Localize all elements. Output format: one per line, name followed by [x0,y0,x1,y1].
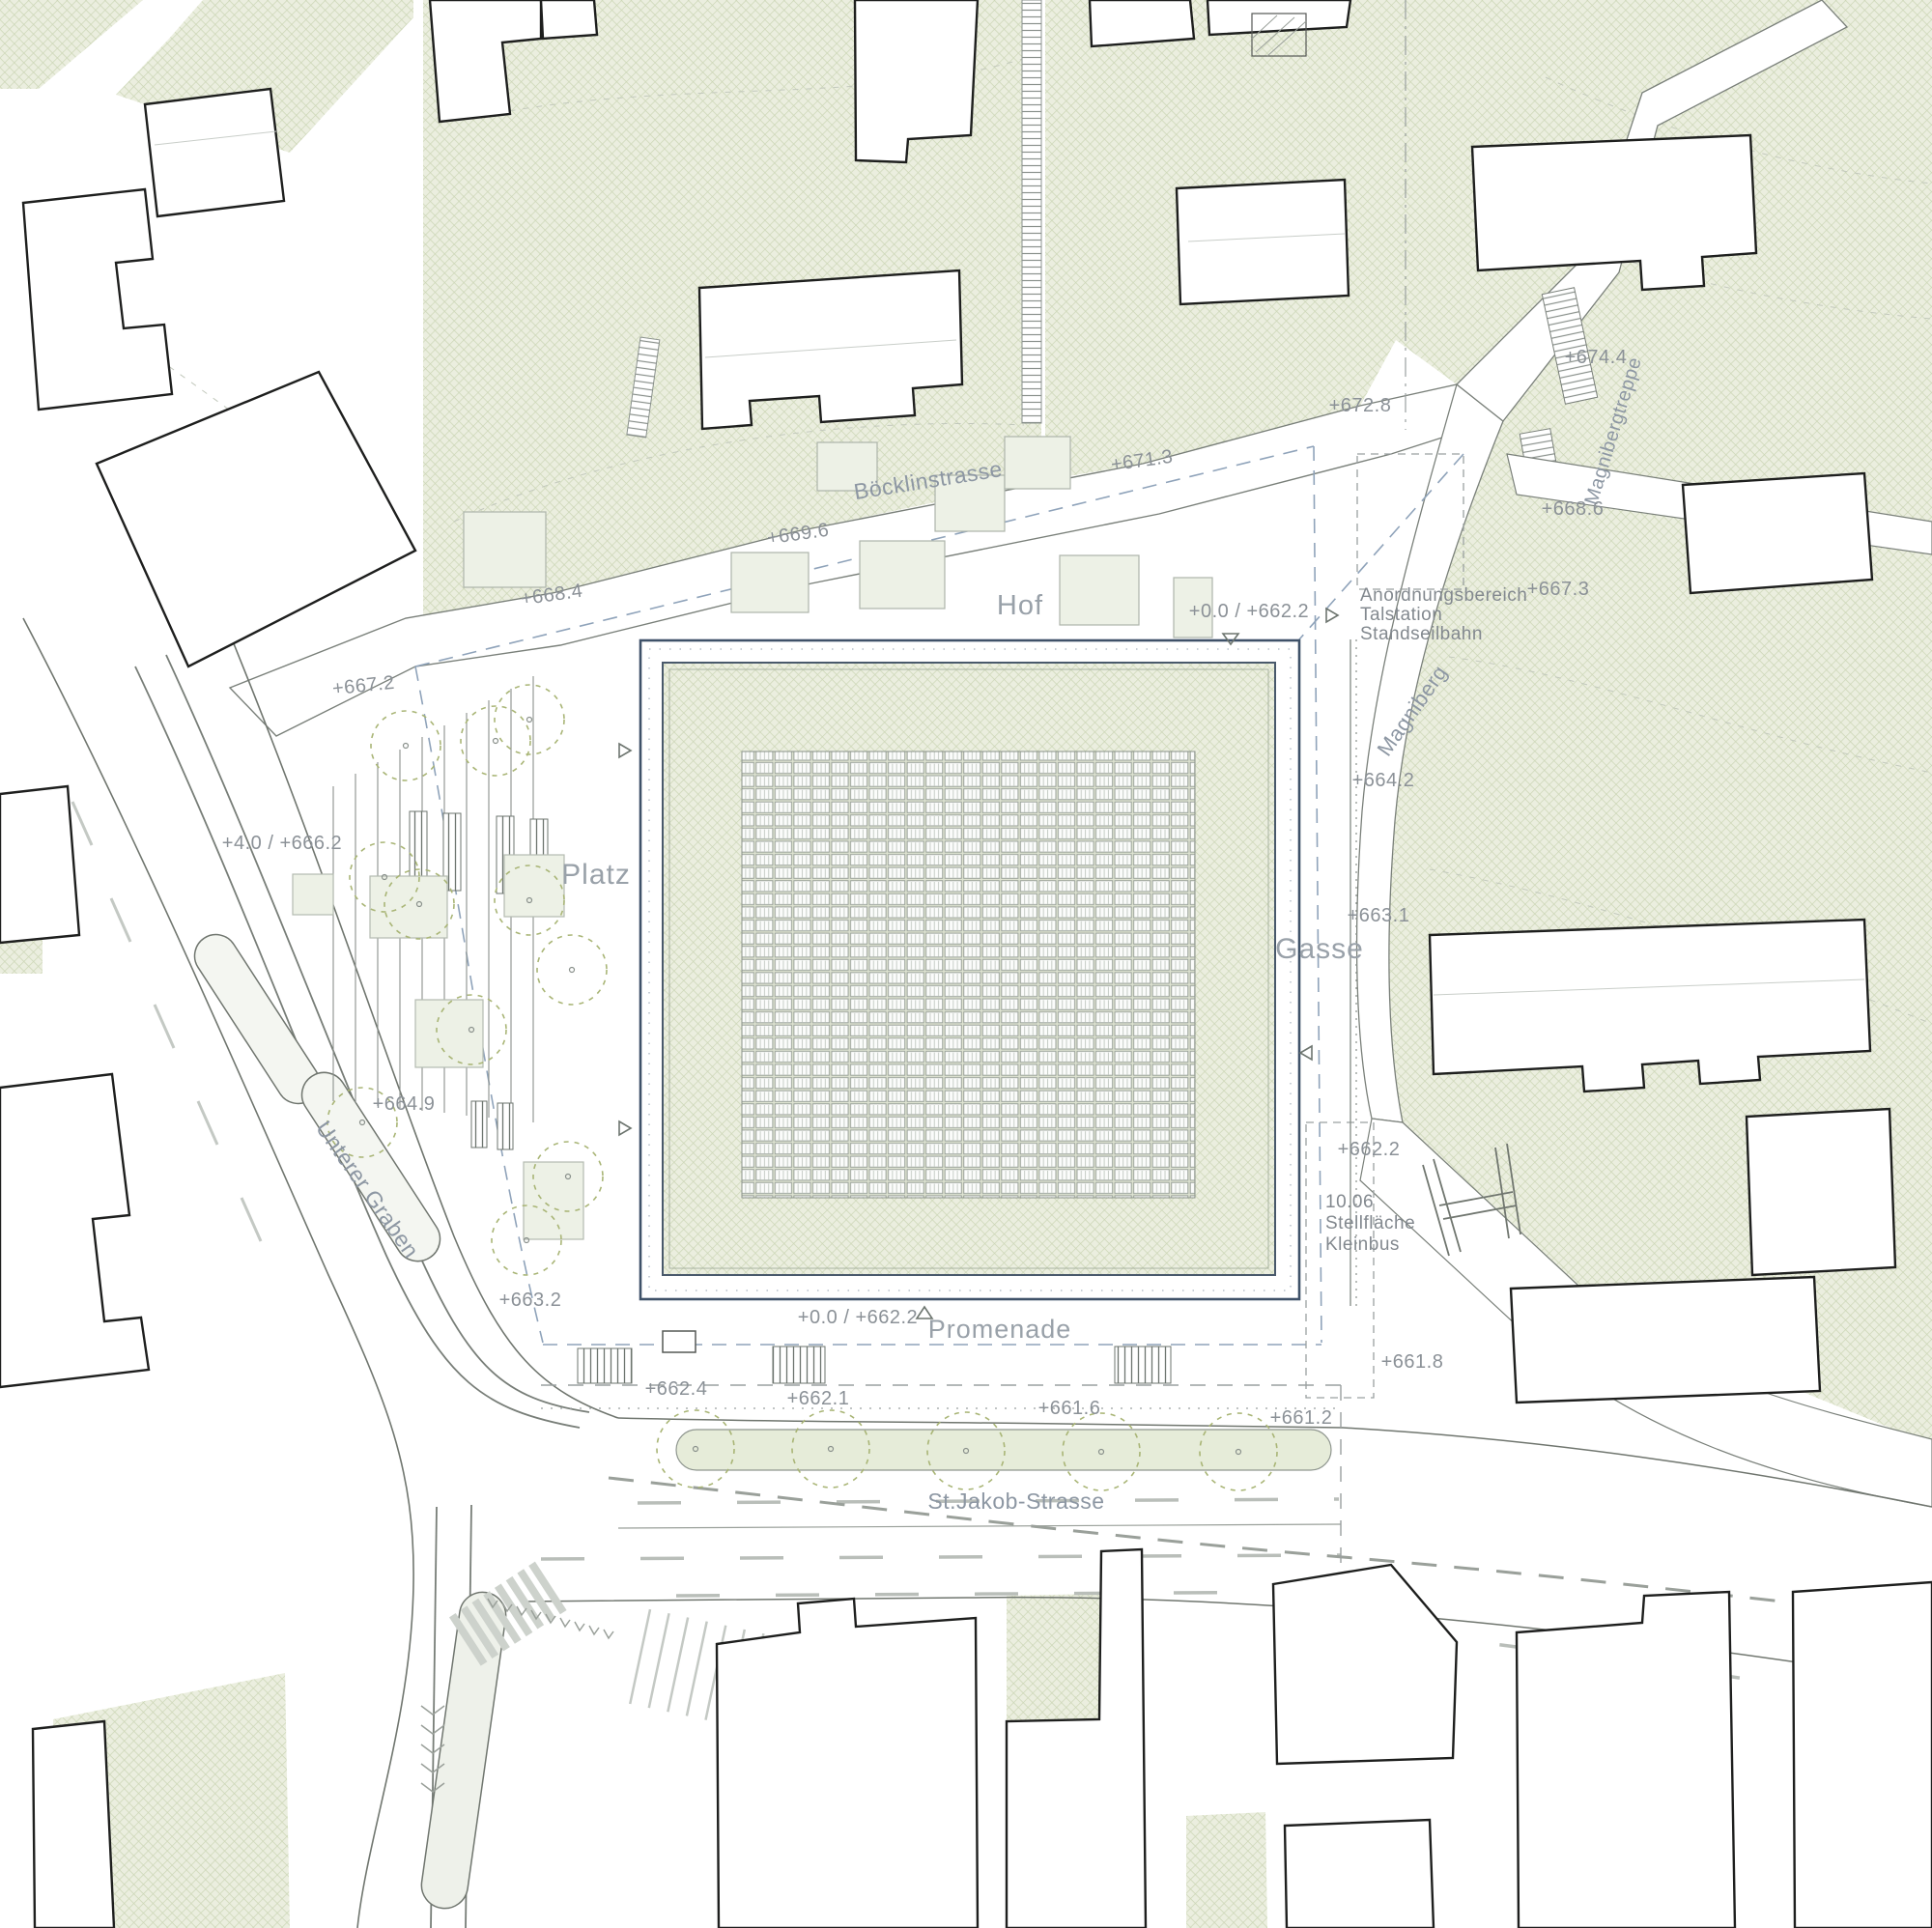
label-elev-663-1: +663.1 [1348,905,1410,926]
label-level-platz: +4.0 / +666.2 [222,833,342,854]
label-elev-672-8: +672.8 [1329,395,1392,416]
label-elev-662-1: +662.1 [787,1388,850,1409]
label-ann-kleinbus-2: Stellfläche [1325,1213,1415,1233]
building [541,0,597,39]
central-square [640,640,1299,1299]
building [1511,1277,1820,1403]
label-elev-662-2-gasse: +662.2 [1338,1139,1401,1160]
label-ann-kleinbus-3: Kleinbus [1325,1234,1400,1255]
building [0,786,79,943]
promenade [578,1331,1331,1470]
label-elev-674-4: +674.4 [1565,347,1628,368]
label-area-promenade: Promenade [928,1315,1072,1344]
label-elev-664-2: +664.2 [1352,770,1415,791]
tree-trunk [570,968,575,973]
building [145,89,284,216]
arrow-plaza-north [619,744,631,757]
site-plan-canvas: BöcklinstrasseMagnibergtreppeMagnibergUn… [0,0,1932,1928]
building [23,189,172,410]
tree-trunk [494,739,498,744]
label-area-hof: Hof [997,590,1043,621]
tree [461,706,530,776]
tree-trunk [527,718,532,723]
label-elev-663-2: +663.2 [499,1290,562,1311]
label-area-platz: Platz [561,859,631,891]
label-ann-talstation-2: Talstation [1360,605,1442,625]
tree-trunk [404,744,409,749]
building [1177,180,1349,304]
tree [495,685,564,754]
building [1285,1820,1434,1928]
building [97,372,415,666]
label-ann-kleinbus-1: 10.06 [1325,1192,1374,1212]
label-elev-667-3: +667.3 [1527,579,1590,600]
building [1090,0,1194,46]
label-street-st-jakob-strasse: St.Jakob-Strasse [927,1489,1104,1514]
label-elev-664-9: +664.9 [373,1093,436,1115]
building [1517,1592,1735,1928]
label-elev-661-2: +661.2 [1270,1407,1333,1429]
label-elev-668-6: +668.6 [1542,498,1605,520]
building [1683,473,1872,593]
building [717,1599,978,1928]
building [33,1721,114,1928]
label-level-promenade: +0.0 / +662.2 [798,1307,918,1328]
building [1747,1109,1895,1275]
arrow-plaza-south [619,1121,631,1135]
label-elev-661-8: +661.8 [1381,1351,1444,1373]
building [0,1074,149,1387]
label-ann-talstation-1: Anordnungsbereich [1360,585,1527,606]
module-grid [742,751,1195,1198]
label-ann-talstation-3: Standseilbahn [1360,624,1483,644]
label-level-hof: +0.0 / +662.2 [1189,601,1309,622]
label-area-gasse: Gasse [1275,933,1364,965]
tree [537,935,607,1005]
label-elev-661-6: +661.6 [1038,1398,1101,1419]
building [1793,1582,1932,1928]
label-elev-662-4: +662.4 [645,1378,708,1400]
arrow-gasse [1300,1046,1312,1060]
site-plan-svg: BöcklinstrasseMagnibergtreppeMagnibergUn… [0,0,1932,1928]
arrow-talstation [1326,609,1338,622]
building [1273,1565,1457,1764]
